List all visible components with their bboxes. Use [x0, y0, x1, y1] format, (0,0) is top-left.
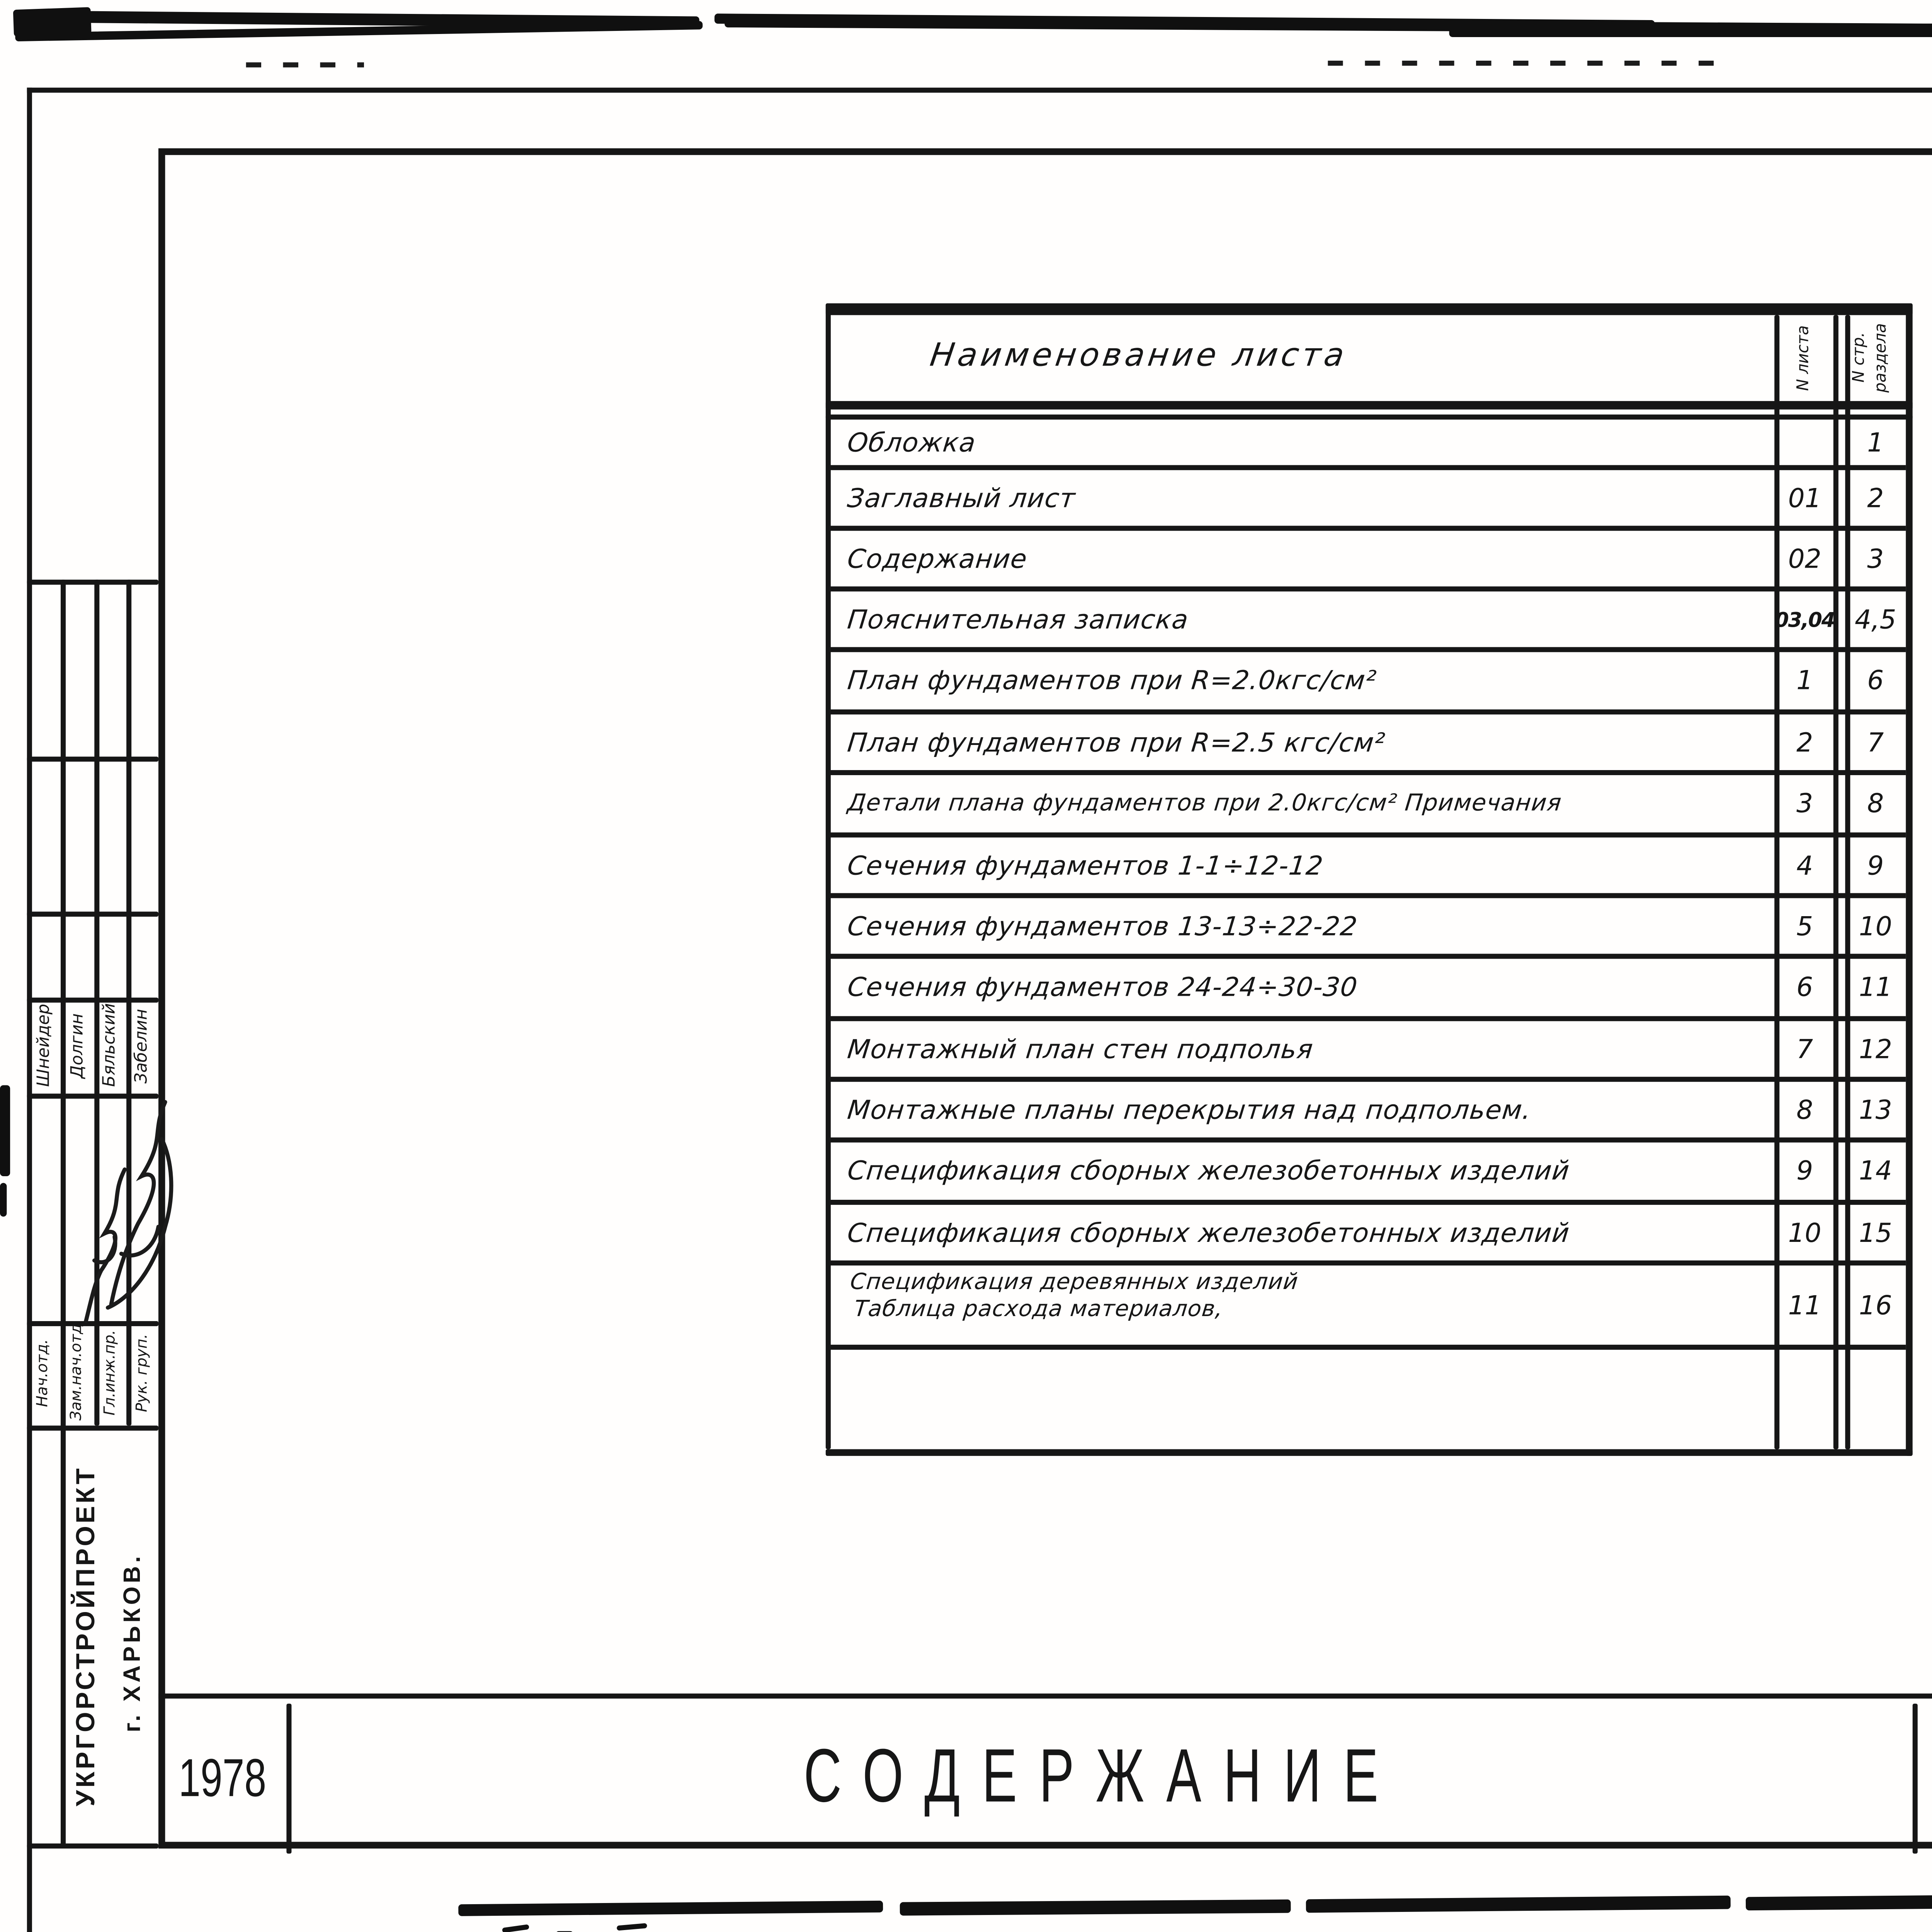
cell-section-page: 14 — [1842, 1143, 1909, 1200]
title-block-line — [286, 1704, 291, 1854]
table-row: Спецификация сборных железобетонных изде… — [831, 1143, 1906, 1205]
table-rows: Обложка1Заглавный лист012Содержание023По… — [826, 303, 1913, 1456]
table-row: Спецификация деревянных изделийТаблица р… — [831, 1265, 1906, 1350]
cell-sheet-title: План фундаментов при R=2.5 кгс/см² — [845, 714, 1764, 770]
table-row: Спецификация сборных железобетонных изде… — [831, 1205, 1906, 1265]
cell-sheet-title: Заглавный лист — [845, 470, 1764, 526]
cell-sheet-title: Спецификация деревянных изделийТаблица р… — [843, 1265, 1765, 1350]
cell-sheet-no: 2 — [1768, 714, 1842, 770]
cell-sheet-no: 1 — [1768, 652, 1842, 709]
cell-sheet-no: 03,04 — [1768, 592, 1842, 647]
signer-name: Забелин — [128, 1001, 158, 1090]
cell-sheet-no: 8 — [1768, 1082, 1842, 1138]
scan-artifact — [0, 1085, 10, 1176]
year: 1978 — [165, 1687, 280, 1870]
cell-sheet-no: 02 — [1768, 531, 1842, 587]
table-row: Содержание023 — [831, 531, 1906, 592]
cell-section-page: 2 — [1842, 470, 1909, 526]
cell-section-page: 4,5 — [1842, 592, 1909, 647]
organization-name: УКРГОРСТРОЙПРОЕКТ — [66, 1429, 109, 1844]
cell-sheet-title: Сечения фундаментов 24-24÷30-30 — [845, 959, 1764, 1016]
signer-name: Бяльский — [96, 1001, 126, 1090]
cell-section-page: 3 — [1842, 531, 1909, 587]
cell-section-page: 12 — [1842, 1021, 1909, 1077]
table-row: Обложка1 — [831, 420, 1906, 470]
cell-sheet-title: Содержание — [845, 531, 1764, 587]
cell-sheet-no: 11 — [1768, 1265, 1842, 1345]
cell-sheet-title — [842, 1350, 1766, 1449]
table-row: План фундаментов при R=2.0кгс/см²16 — [831, 652, 1906, 714]
cell-sheet-title: Монтажный план стен подполья — [845, 1021, 1764, 1077]
sheet: 3 Шнейдер Долгин Бяльский Забелин Нач.от… — [0, 0, 1932, 1932]
table-row: Детали плана фундаментов при 2.0кгс/см² … — [831, 775, 1906, 837]
organization-city: г. ХАРЬКОВ. — [109, 1442, 155, 1844]
cell-sheet-title: Монтажные планы перекрытия над подпольем… — [845, 1082, 1764, 1138]
table-row — [831, 1350, 1906, 1449]
cell-sheet-title: Детали плана фундаментов при 2.0кгс/см² … — [845, 775, 1764, 832]
cell-sheet-no — [1768, 420, 1842, 465]
cell-sheet-title: Обложка — [845, 420, 1763, 465]
cell-sheet-title: План фундаментов при R=2.0кгс/см² — [845, 652, 1764, 709]
margin-grid-line — [61, 580, 66, 1849]
table-row: Сечения фундаментов 13-13÷22-22510 — [831, 898, 1906, 959]
cell-sheet-title: Сечения фундаментов 13-13÷22-22 — [845, 898, 1764, 954]
cell-section-page: 15 — [1842, 1205, 1909, 1260]
cell-section-page: 8 — [1842, 775, 1909, 832]
cell-section-page: 10 — [1842, 898, 1909, 954]
scan-canvas: 3 Шнейдер Долгин Бяльский Забелин Нач.от… — [0, 0, 1932, 1932]
table-row: Сечения фундаментов 24-24÷30-30611 — [831, 959, 1906, 1021]
margin-grid-line — [27, 1844, 158, 1849]
cell-sheet-no: 4 — [1768, 837, 1842, 893]
margin-grid-line — [27, 580, 158, 585]
signer-name: Долгин — [62, 1001, 94, 1090]
cell-sheet-no: 7 — [1768, 1021, 1842, 1077]
table-row: Монтажный план стен подполья712 — [831, 1021, 1906, 1082]
signer-role: Зам.нач.отд — [62, 1326, 94, 1420]
title-block: 1978 СОДЕРЖАНИЕ 94-026/ ЧАСТЬ 01 РАЗДЕЛ … — [158, 1694, 1932, 1849]
cell-sheet-no: 3 — [1768, 775, 1842, 832]
document-title: СОДЕРЖАНИЕ — [437, 1690, 1767, 1867]
cell-sheet-no: 5 — [1768, 898, 1842, 954]
signer-name: Шнейдер — [29, 1001, 61, 1090]
cell-section-page: 7 — [1842, 714, 1909, 770]
cell-sheet-title: Сечения фундаментов 1-1÷12-12 — [845, 837, 1764, 893]
table-row: Пояснительная записка03,044,5 — [831, 592, 1906, 652]
margin-grid-line — [27, 912, 158, 917]
cell-sheet-no: 01 — [1768, 470, 1842, 526]
signer-role: Рук. груп. — [128, 1326, 158, 1420]
cell-sheet-no: 6 — [1768, 959, 1842, 1016]
cell-sheet-title: Спецификация сборных железобетонных изде… — [845, 1143, 1764, 1200]
scan-artifact — [1449, 24, 1932, 37]
cell-sheet-title-line1: Спецификация деревянных изделий — [849, 1270, 1765, 1297]
document-code: 94-026/ — [1915, 1698, 1932, 1859]
cell-sheet-title: Спецификация сборных железобетонных изде… — [845, 1205, 1764, 1260]
scan-artifact — [1328, 61, 1732, 66]
signer-role: Гл.инж.пр. — [96, 1326, 126, 1420]
table-row: Сечения фундаментов 1-1÷12-1249 — [831, 837, 1906, 898]
cell-section-page: 6 — [1842, 652, 1909, 709]
table-row: План фундаментов при R=2.5 кгс/см²27 — [831, 714, 1906, 775]
table-row: Монтажные планы перекрытия над подпольем… — [831, 1082, 1906, 1143]
signature — [98, 1092, 185, 1325]
cell-section-page: 1 — [1842, 420, 1909, 465]
cell-section-page — [1842, 1350, 1909, 1449]
cell-section-page: 13 — [1842, 1082, 1909, 1138]
cell-sheet-no: 10 — [1768, 1205, 1842, 1260]
cell-section-page: 9 — [1842, 837, 1909, 893]
cell-sheet-title: Пояснительная записка — [845, 592, 1764, 647]
signer-role: Нач.отд. — [29, 1326, 61, 1420]
cell-sheet-no: 9 — [1768, 1143, 1842, 1200]
cell-section-page: 16 — [1842, 1265, 1909, 1345]
contents-table: Наименование листа N листа N стр. раздел… — [826, 303, 1913, 1456]
scan-artifact — [0, 1183, 7, 1216]
scan-artifact — [246, 62, 364, 67]
cell-section-page: 11 — [1842, 959, 1909, 1016]
margin-grid-line — [27, 757, 158, 762]
cell-sheet-no — [1768, 1350, 1842, 1449]
table-row: Заглавный лист012 — [831, 470, 1906, 531]
cell-sheet-title-line2: Таблица расхода материалов, — [846, 1297, 1762, 1323]
